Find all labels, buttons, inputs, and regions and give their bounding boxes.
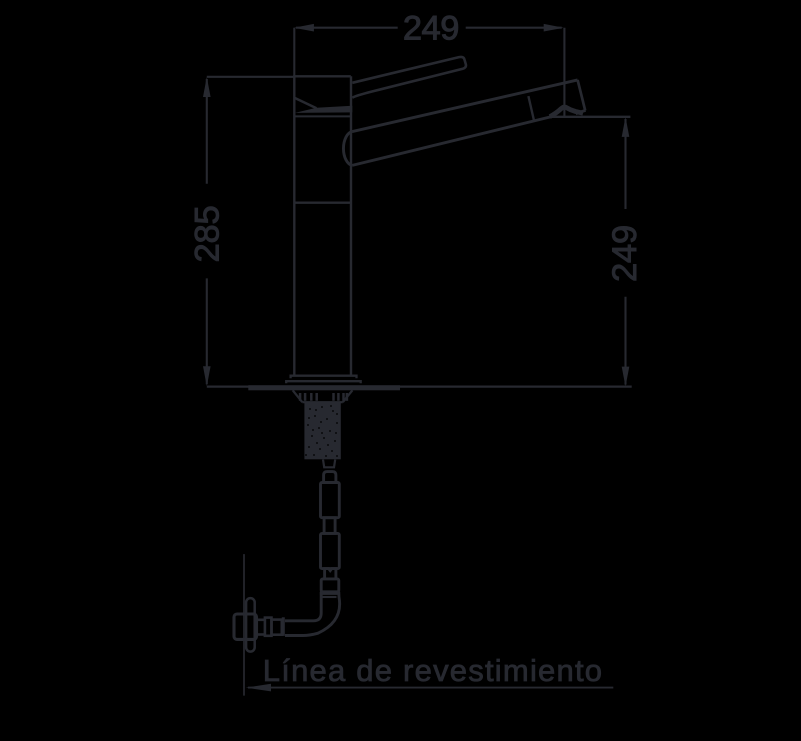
svg-text:249: 249: [403, 9, 459, 47]
svg-text:285: 285: [189, 206, 227, 263]
svg-text:Línea de revestimiento: Línea de revestimiento: [263, 653, 603, 688]
svg-text:249: 249: [606, 225, 644, 282]
